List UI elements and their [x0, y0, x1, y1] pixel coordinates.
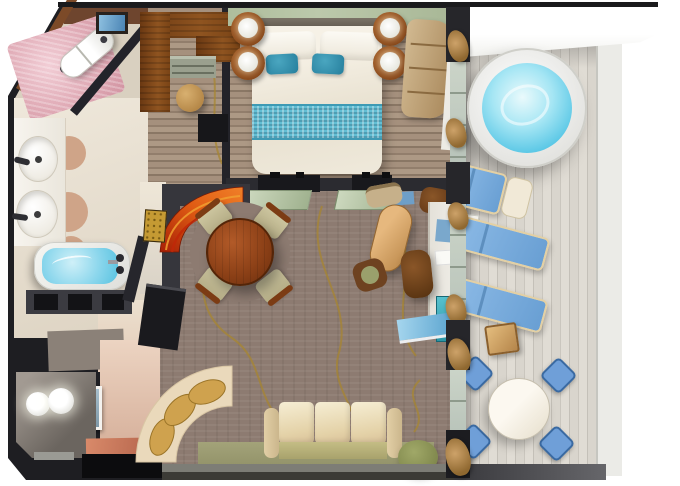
sofa-cushion-3 — [351, 402, 386, 444]
sofa-cushion-2 — [315, 402, 350, 444]
wall-segment — [446, 162, 470, 204]
glass-door — [450, 370, 466, 434]
sofa-cushion-1 — [279, 402, 314, 444]
sofa-seat — [279, 442, 387, 459]
sofa-arm-left — [264, 408, 279, 458]
top-wall-line — [58, 2, 658, 7]
suite-floorplan — [0, 0, 680, 486]
bottom-wall-strip-2 — [162, 472, 454, 480]
bottom-wall-strip-1 — [162, 464, 454, 472]
window-wall — [446, 6, 470, 478]
sofa — [264, 402, 402, 460]
